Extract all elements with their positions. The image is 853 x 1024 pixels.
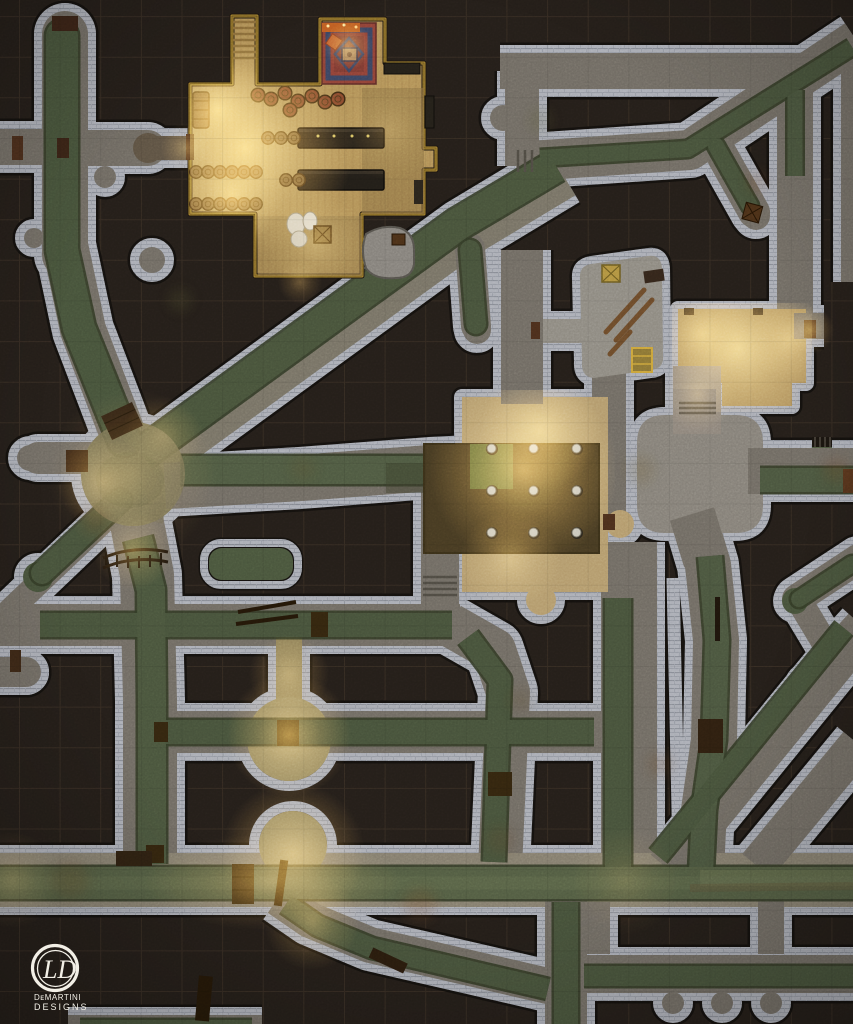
svg-text:DᴇMARTINI: DᴇMARTINI (34, 993, 81, 1002)
svg-text:DESIGNS: DESIGNS (34, 1002, 89, 1012)
svg-text:LD: LD (42, 955, 76, 984)
